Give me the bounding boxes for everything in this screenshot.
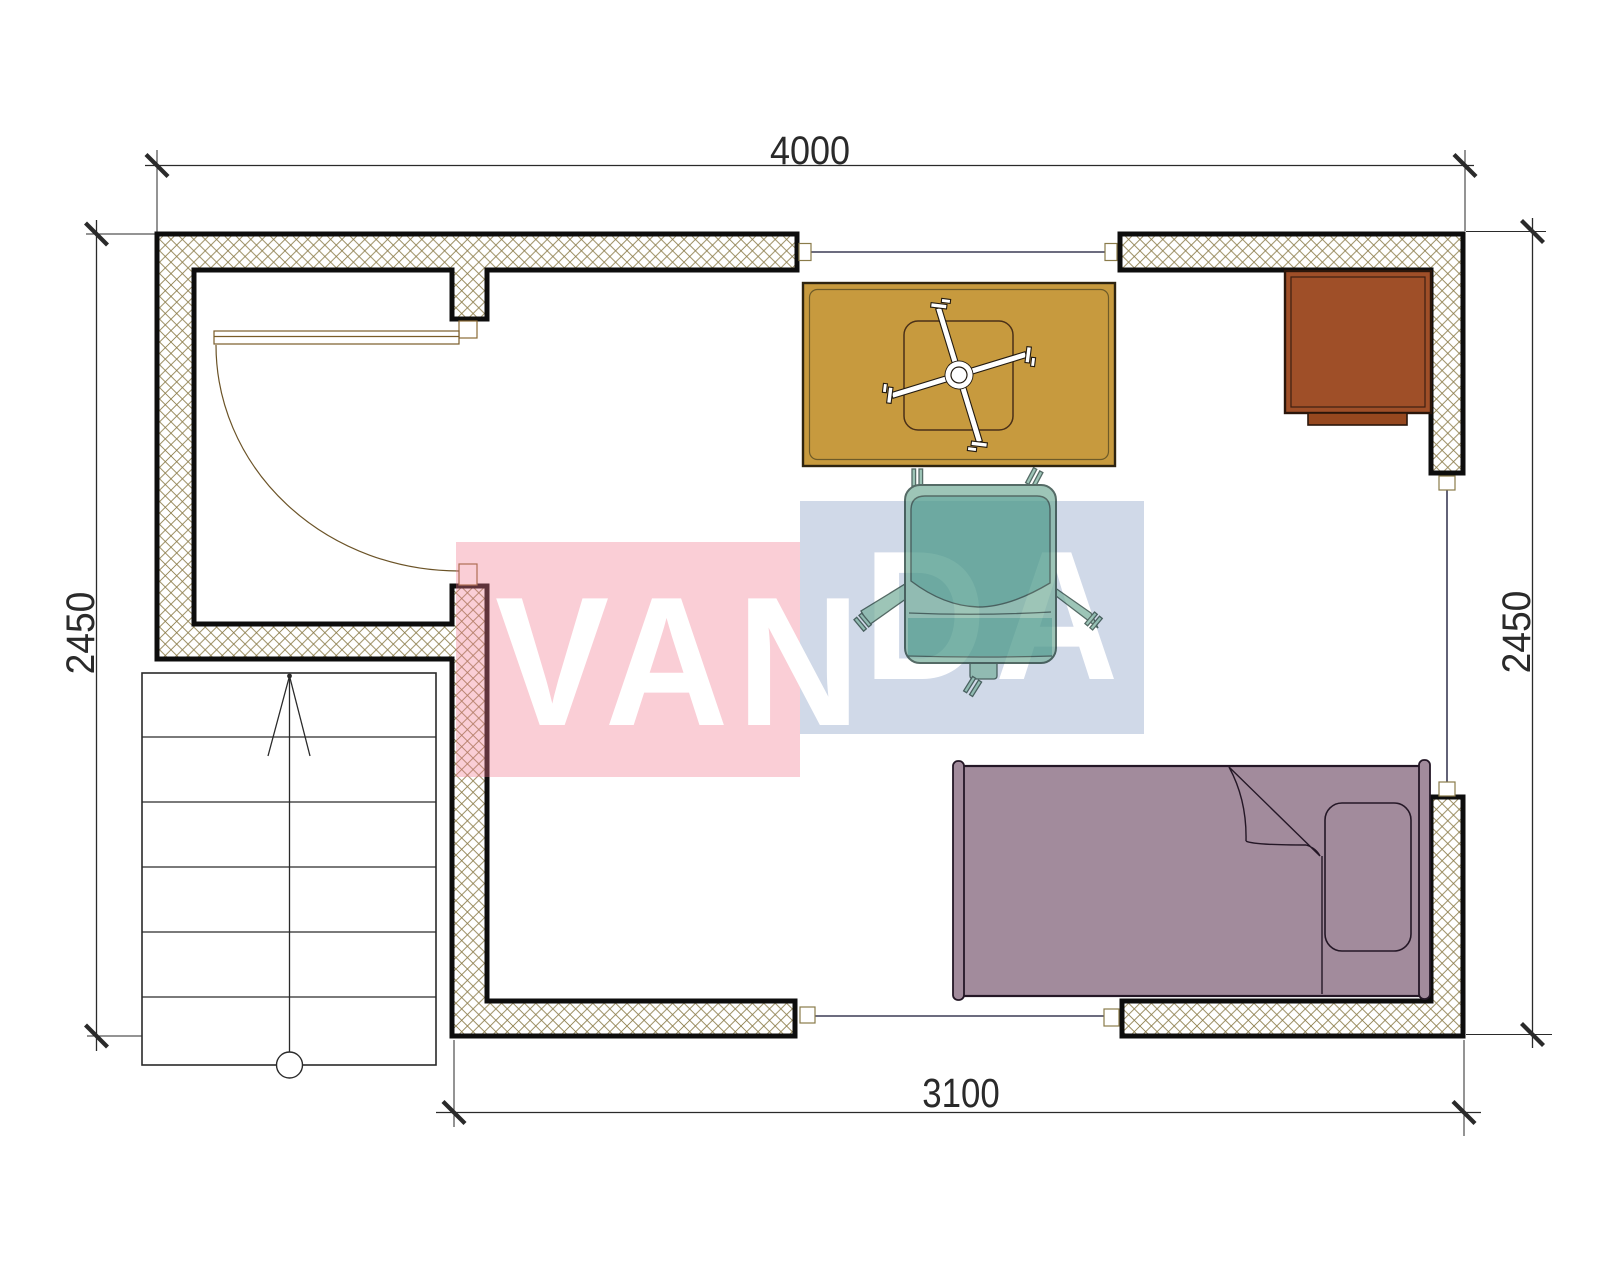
svg-text:2450: 2450 [1495, 591, 1540, 674]
svg-text:2450: 2450 [59, 592, 104, 675]
svg-text:4000: 4000 [770, 129, 850, 173]
svg-text:VAN: VAN [495, 558, 869, 764]
svg-text:3100: 3100 [922, 1071, 999, 1116]
